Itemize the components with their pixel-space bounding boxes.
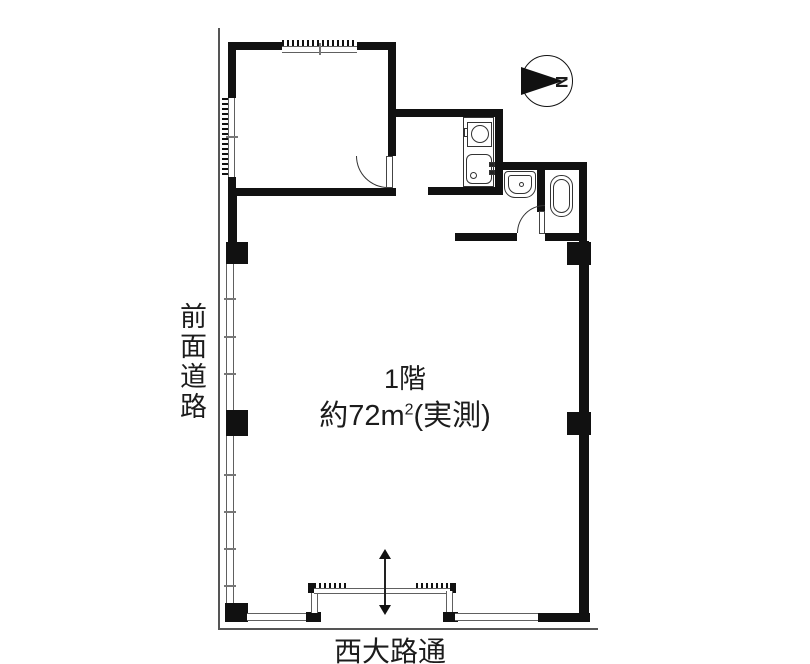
window-left-mullion <box>226 136 238 138</box>
front-glass-bottom-right <box>455 613 539 621</box>
front-wall-upper <box>228 196 237 242</box>
bath-door-leaf <box>539 211 545 234</box>
room-right-wall <box>388 42 396 156</box>
road-label-left: 前面道路 <box>172 302 211 422</box>
floor-plan: 前面道路 西大路通 N <box>0 0 810 664</box>
compass-letter: N <box>551 76 571 88</box>
glass-mullion <box>224 548 236 550</box>
alcove-wall-left <box>311 591 318 613</box>
area-suffix: (実測) <box>413 400 490 432</box>
corner-pillar-bottom-left <box>225 603 248 622</box>
bath-bottom-wall-right <box>545 233 587 241</box>
room-door-arc <box>356 156 388 188</box>
right-pillar-2 <box>567 412 591 435</box>
floor-label: 1階 <box>330 357 480 396</box>
alcove-foot-left <box>306 612 321 622</box>
front-glass-lower <box>226 436 234 603</box>
road-line-left <box>218 28 220 630</box>
bath-top-wall <box>500 162 587 170</box>
front-pillar-1 <box>226 242 248 264</box>
glass-mullion <box>224 298 236 300</box>
room-top-wall-left <box>228 42 282 50</box>
glass-mullion <box>224 373 236 375</box>
alcove-wall-right <box>446 591 453 613</box>
bath-bottom-wall-left <box>455 233 517 241</box>
entrance-door-line <box>348 588 416 594</box>
kitchen-right-wall <box>495 109 503 195</box>
glass-mullion <box>224 511 236 513</box>
right-pillar-1 <box>567 242 591 265</box>
glass-mullion <box>224 336 236 338</box>
front-glass-bottom-left <box>247 613 309 621</box>
storefront-window-right <box>416 588 450 594</box>
road-label-bottom: 西大路通 <box>295 630 485 664</box>
glass-mullion <box>224 585 236 587</box>
room-door-leaf <box>386 156 393 188</box>
storefront-window-left <box>314 588 348 594</box>
room-left-wall-upper <box>228 42 236 98</box>
area-prefix: 約72m <box>319 400 404 432</box>
area-label: 約72m2(実測) <box>290 392 520 434</box>
window-top-mullion <box>319 43 321 55</box>
kitchen-bottom-wall <box>428 187 503 195</box>
bath-right-wall <box>579 170 587 233</box>
kitchen-top-wall <box>396 109 503 117</box>
glass-mullion <box>224 474 236 476</box>
room-bottom-wall <box>228 188 396 196</box>
window-left <box>228 98 235 177</box>
front-pillar-2 <box>226 410 248 436</box>
